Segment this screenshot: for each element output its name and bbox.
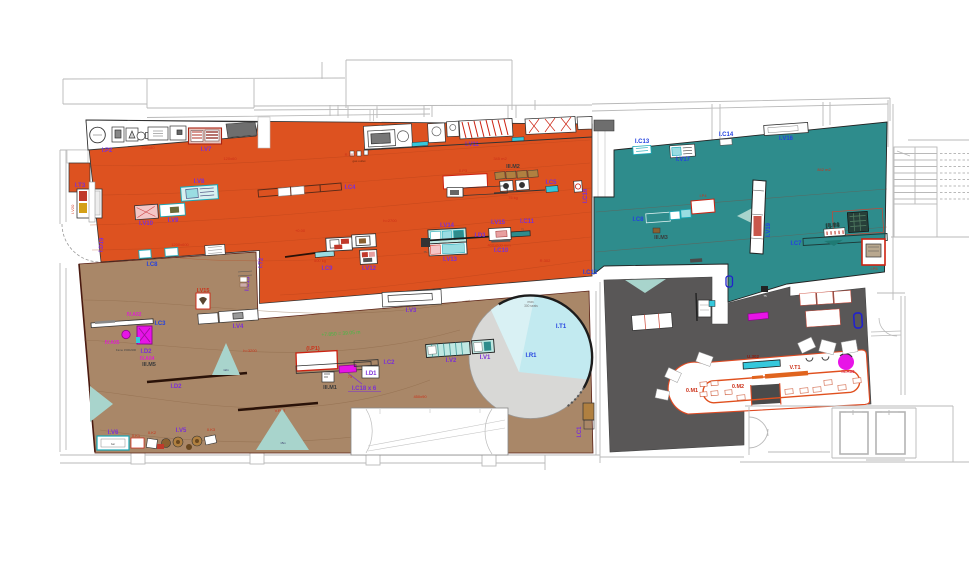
svg-text:I.R1: I.R1	[525, 353, 537, 359]
svg-text:I.P2: I.P2	[102, 148, 113, 154]
svg-text:bar: bar	[111, 442, 115, 446]
svg-text:IV.A06: IV.A06	[841, 369, 855, 374]
svg-text:75: 75	[763, 294, 767, 298]
svg-text:I.V10: I.V10	[139, 221, 154, 227]
svg-text:R.302: R.302	[540, 258, 551, 263]
svg-text:I.V14: I.V14	[440, 223, 455, 229]
svg-text:I.C18 x 6: I.C18 x 6	[352, 386, 377, 392]
svg-text:0.M1: 0.M1	[686, 388, 698, 394]
svg-text:I.T3: I.T3	[75, 183, 86, 189]
svg-text:0.M2: 0.M2	[732, 384, 744, 390]
svg-text:0.K1: 0.K1	[132, 433, 141, 438]
svg-text:345 m2: 345 m2	[493, 156, 507, 161]
svg-text:75 kg: 75 kg	[508, 195, 518, 200]
svg-text:120x60: 120x60	[223, 156, 237, 161]
svg-text:I.C11: I.C11	[520, 219, 535, 225]
svg-text:I.V3: I.V3	[406, 308, 417, 314]
svg-text:I.V15: I.V15	[491, 220, 506, 226]
svg-text:230x80: 230x80	[141, 145, 155, 150]
svg-text:I.C5: I.C5	[545, 180, 557, 186]
svg-text:I.P5: I.P5	[870, 266, 878, 271]
svg-text:I.D3: I.D3	[474, 233, 486, 239]
svg-text:III.M3: III.M3	[654, 235, 668, 241]
svg-text:+0.00: +0.00	[295, 228, 306, 233]
svg-text:1200x600: 1200x600	[171, 242, 189, 247]
svg-text:I.V17: I.V17	[676, 157, 691, 163]
svg-text:0.P3: 0.P3	[459, 168, 468, 173]
svg-text:842 m2: 842 m2	[817, 167, 831, 172]
svg-text:I.V13: I.V13	[443, 257, 458, 263]
svg-text:I.V9: I.V9	[168, 218, 179, 224]
svg-text:I.V4: I.V4	[233, 324, 244, 330]
svg-text:I.T2: I.T2	[258, 257, 265, 268]
svg-text:III.M2: III.M2	[506, 164, 520, 170]
svg-text:I.V6: I.V6	[108, 430, 119, 436]
svg-text:0.K2: 0.K2	[148, 430, 157, 435]
svg-text:15m: 15m	[280, 441, 286, 445]
svg-text:I.V16: I.V16	[779, 136, 794, 142]
svg-text:400x600 mm: 400x600 mm	[487, 243, 511, 248]
svg-text:I.V19: I.V19	[766, 222, 772, 237]
svg-text:I.V2: I.V2	[446, 358, 457, 364]
svg-text:75: 75	[423, 250, 427, 254]
svg-text:12m: 12m	[223, 368, 229, 372]
svg-text:III.M1: III.M1	[323, 385, 337, 391]
svg-text:h=2700: h=2700	[383, 218, 397, 223]
svg-text:I.D1: I.D1	[365, 371, 377, 377]
svg-text:I.C12: I.C12	[583, 270, 598, 276]
svg-text:I.C13: I.C13	[635, 139, 650, 145]
svg-text:I.D19: I.D19	[99, 237, 106, 252]
svg-text:U.302: U.302	[747, 354, 760, 359]
svg-text:I.C8: I.C8	[146, 262, 158, 268]
svg-text:I.C7: I.C7	[790, 241, 802, 247]
svg-text:I.C8: I.C8	[632, 217, 644, 223]
svg-text:I.D2: I.D2	[170, 384, 182, 390]
svg-text:I.V11: I.V11	[465, 142, 479, 148]
svg-text:300 seats: 300 seats	[524, 304, 538, 308]
svg-text:I.C10: I.C10	[494, 248, 509, 254]
svg-text:R.301: R.301	[345, 152, 356, 157]
svg-text:I.C16: I.C16	[583, 188, 589, 203]
svg-text:I.V8: I.V8	[194, 179, 205, 185]
svg-text:III.M5: III.M5	[142, 362, 156, 368]
svg-text:I.C4: I.C4	[344, 185, 356, 191]
svg-text:I.V20: I.V20	[70, 204, 75, 214]
svg-text:0.K3: 0.K3	[207, 427, 216, 432]
svg-text:I.C1: I.C1	[577, 426, 583, 438]
svg-text:I.C2: I.C2	[383, 360, 395, 366]
svg-text:gas outlet: gas outlet	[352, 159, 365, 163]
svg-text:450x90: 450x90	[413, 394, 427, 399]
svg-text:IV.A05: IV.A05	[105, 340, 120, 346]
svg-text:I.C3: I.C3	[154, 321, 166, 327]
svg-text:I.C14: I.C14	[719, 132, 734, 138]
svg-text:I.V7: I.V7	[201, 147, 212, 153]
svg-text:h=3200: h=3200	[243, 348, 257, 353]
svg-text:V.T1: V.T1	[789, 365, 800, 371]
svg-text:frame 1500x900: frame 1500x900	[116, 348, 137, 352]
svg-text:75: 75	[348, 374, 353, 379]
svg-text:IV.A02: IV.A02	[127, 312, 142, 318]
svg-text:I.V5: I.V5	[176, 428, 187, 434]
svg-text:I.C9: I.C9	[321, 266, 333, 272]
svg-text:I.D2: I.D2	[140, 349, 152, 355]
svg-text:I.P4: I.P4	[699, 193, 707, 198]
svg-text:I.V1: I.V1	[480, 355, 491, 361]
svg-text:I.V12: I.V12	[362, 266, 377, 272]
svg-text:500 kg: 500 kg	[314, 258, 326, 263]
svg-text:I.T1: I.T1	[556, 324, 567, 330]
